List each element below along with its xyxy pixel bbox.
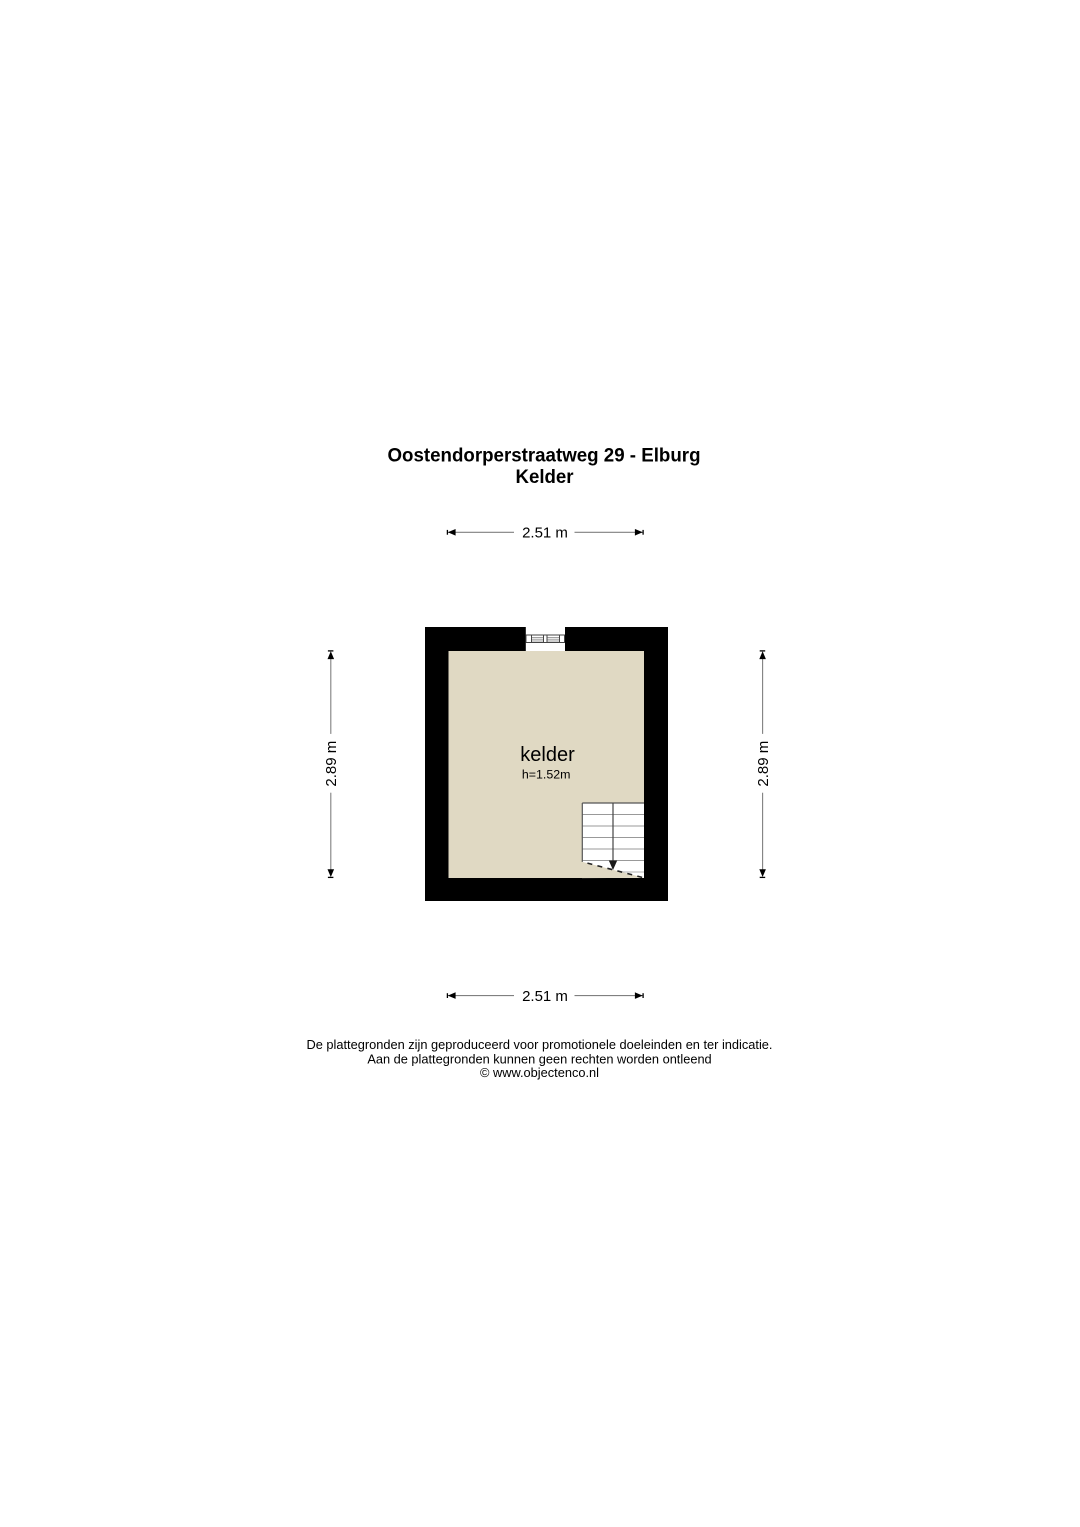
svg-text:2.89 m: 2.89 m bbox=[323, 741, 340, 787]
svg-text:Kelder: Kelder bbox=[516, 466, 574, 488]
svg-text:2.51 m: 2.51 m bbox=[522, 525, 568, 542]
svg-text:De plattegronden zijn geproduc: De plattegronden zijn geproduceerd voor … bbox=[307, 1037, 773, 1052]
svg-text:2.51 m: 2.51 m bbox=[522, 988, 568, 1005]
svg-text:2.89 m: 2.89 m bbox=[755, 741, 772, 787]
svg-text:kelder: kelder bbox=[520, 744, 575, 766]
svg-text:h=1.52m: h=1.52m bbox=[522, 768, 571, 782]
svg-text:© www.objectenco.nl: © www.objectenco.nl bbox=[480, 1065, 599, 1080]
svg-text:Oostendorperstraatweg 29 - Elb: Oostendorperstraatweg 29 - Elburg bbox=[388, 445, 701, 467]
